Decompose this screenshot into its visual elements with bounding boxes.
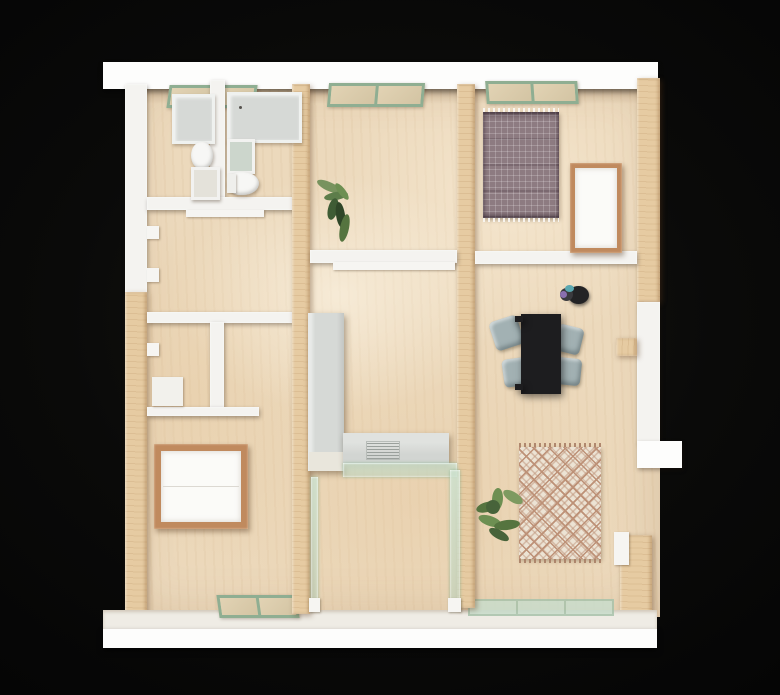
balcony-ledge [637,441,682,468]
single-bed-frame [570,163,622,253]
right-wall-white-tab [614,532,629,565]
wall-shelf-tab-2 [147,268,159,282]
right-wall-wood-tab [616,338,637,356]
glass-clip-left [309,598,320,612]
toilet-2-tank [227,174,236,193]
kitchen-glass-shelf [343,463,457,477]
left-exterior-wall-wood [125,292,147,614]
glazing-strip-bottom-right [468,599,614,616]
glass-wall-right [450,470,460,610]
right-exterior-wall-white [637,302,660,443]
diamond-pattern-rug [519,447,601,559]
vanity-drain-dot [239,106,242,109]
single-bed-mattress [575,168,617,248]
window-top-3 [485,81,579,104]
closet-shelf-wall [147,407,259,416]
left-exterior-wall-white [125,84,147,292]
double-bed-seam [163,486,239,487]
living-half-wall-sill [333,262,455,270]
plant-upper [314,178,362,244]
dining-table-leg-tab-1 [515,316,523,322]
closet-divider-wall [210,322,224,408]
bottom-exterior-wall-face [103,629,657,648]
kitchen-cabinet-base [309,452,343,471]
cooktop-vent-lines [366,441,400,460]
model-photo [0,0,780,695]
plant-lower [474,486,526,552]
double-bed-frame [154,444,248,529]
dining-table-leg-tab-2 [515,384,523,390]
kitchen-tall-cabinet [308,313,344,471]
bathroom-bottom-wall [147,197,295,210]
wall-sink-1 [227,139,255,174]
wall-sink-2 [191,167,220,200]
dining-table [521,314,561,394]
bathroom-wall-ledge [186,210,264,217]
window-bottom-1 [216,595,299,618]
vanity-counter [227,92,302,143]
shower-tray [172,94,215,144]
plaid-rug [483,112,559,218]
window-top-2 [327,83,425,107]
figurine [556,282,590,306]
glass-wall-left [311,477,318,610]
wall-shelf-tab-3 [147,343,159,356]
glass-clip-right [448,598,461,612]
right-exterior-wall-wood-top [637,78,660,302]
wall-shelf-tab-1 [147,226,159,239]
storage-box [152,377,183,406]
toilet-1 [191,142,213,169]
